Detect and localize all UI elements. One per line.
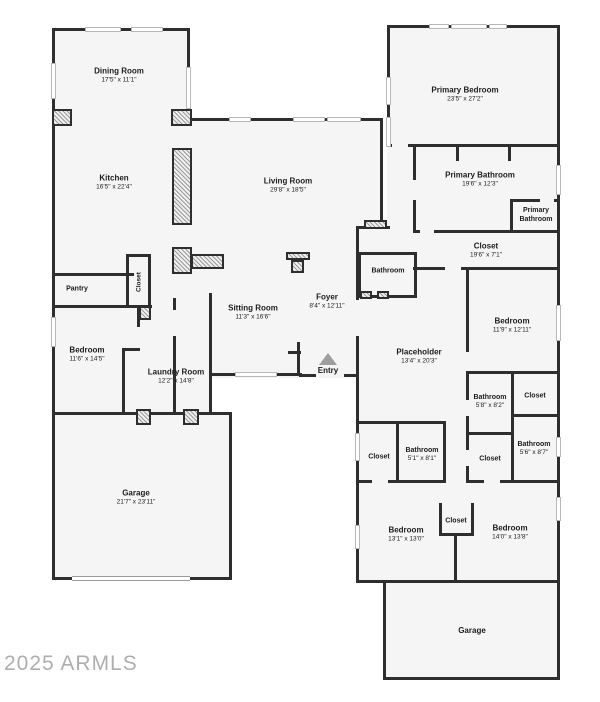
room-label-bedroom-b1: Bedroom 13'1" x 13'0": [388, 526, 424, 545]
room-name: Bathroom: [405, 446, 438, 455]
wall: [443, 424, 446, 481]
door-opening: [540, 199, 554, 202]
room-name: Foyer: [309, 293, 344, 303]
room-name: Placeholder: [396, 348, 441, 358]
window: [557, 498, 560, 520]
wall: [52, 28, 190, 31]
wall: [383, 583, 386, 680]
room-name: Pantry: [66, 284, 88, 293]
room-dims: 29'8" x 18'5": [264, 187, 312, 195]
wall: [466, 432, 514, 435]
room-name: Closet: [445, 516, 466, 525]
room-label-closet-b: Closet: [368, 452, 389, 461]
window: [557, 306, 560, 340]
floor-area: [208, 288, 302, 378]
door-opening: [484, 480, 500, 483]
window: [52, 318, 55, 346]
room-label-dining: Dining Room 17'5" x 11'1": [94, 67, 144, 86]
room-name: Bedroom: [69, 346, 104, 356]
wall: [126, 254, 151, 257]
wall: [383, 677, 560, 680]
window: [430, 25, 448, 28]
room-dims: 11'9" x 12'11": [493, 327, 531, 335]
room-label-closet-c: Closet: [479, 454, 500, 463]
window: [557, 438, 560, 456]
room-dims: 12'2" x 14'8": [148, 378, 204, 386]
wall-fixture: [139, 306, 151, 320]
room-label-bathroom-58: Bathroom 5'8" x 8'2": [473, 393, 506, 411]
room-label-bedroom-right: Bedroom 11'9" x 12'11": [493, 317, 531, 336]
pillar-fixture: [136, 409, 151, 425]
wall: [511, 432, 514, 483]
room-dims: 5'8" x 8'2": [473, 402, 506, 410]
window: [132, 28, 162, 31]
room-dims: 11'6" x 14'5": [69, 356, 104, 364]
wall: [187, 28, 190, 70]
room-label-closet-a: Closet: [524, 391, 545, 400]
room-dims: 11'3" x 16'6": [228, 314, 278, 322]
room-dims: 19'6" x 7'1": [470, 252, 502, 260]
room-name: Closet: [524, 391, 545, 400]
room-dims: 8'4" x 12'11": [309, 303, 344, 311]
room-label-pantry: Pantry: [66, 284, 88, 293]
floor-plan: Dining Room 17'5" x 11'1" Kitchen 16'5" …: [0, 0, 600, 702]
kitchen-counter-fixture: [172, 247, 192, 274]
room-label-bedroom-left: Bedroom 11'6" x 14'5": [69, 346, 104, 365]
room-name: Closet: [479, 454, 500, 463]
wall: [380, 118, 383, 224]
window: [52, 64, 55, 98]
window: [490, 25, 506, 28]
window: [236, 373, 276, 376]
fireplace-fixture: [286, 252, 310, 260]
window: [328, 118, 360, 121]
room-name: Laundry Room: [148, 368, 204, 378]
wall: [52, 273, 134, 276]
room-label-bedroom-b2: Bedroom 14'0" x 13'8": [492, 524, 528, 543]
kitchen-counter-fixture: [191, 254, 224, 269]
room-name: Bedroom: [493, 317, 531, 327]
room-label-bathroom-hall: Bathroom: [371, 266, 404, 275]
window: [387, 118, 390, 146]
wall: [466, 270, 469, 352]
room-name: Living Room: [264, 177, 312, 187]
window: [356, 526, 359, 548]
room-label-garage-left: Garage 21'7" x 23'11": [117, 489, 156, 508]
door-opening: [173, 310, 176, 336]
room-dims: 21'7" x 23'11": [117, 499, 156, 507]
door-opening: [356, 300, 359, 336]
room-name: Entry: [318, 366, 338, 376]
window: [230, 118, 250, 121]
room-name: Sitting Room: [228, 304, 278, 314]
column-fixture: [52, 109, 72, 126]
room-name: Primary Bedroom: [431, 86, 498, 96]
wall: [413, 230, 560, 233]
kitchen-island-fixture: [172, 148, 192, 225]
wall: [508, 147, 511, 161]
room-label-closet-mid: Closet: [445, 516, 466, 525]
door-opening: [446, 480, 466, 483]
wall: [439, 533, 474, 536]
wall: [148, 254, 151, 308]
wall: [396, 424, 399, 481]
room-label-entry: Entry: [318, 366, 338, 376]
room-label-placeholder: Placeholder 13'4" x 20'3": [396, 348, 441, 367]
wall: [511, 414, 560, 417]
room-label-foyer: Foyer 8'4" x 12'11": [309, 293, 344, 312]
wall: [439, 503, 442, 536]
room-name: Primary Bathroom: [445, 171, 515, 181]
window: [356, 434, 359, 460]
room-label-kitchen: Kitchen 16'5" x 22'4": [96, 174, 132, 193]
fireplace-fixture: [291, 260, 304, 273]
room-dims: 17'5" x 11'1": [94, 77, 144, 85]
room-name: Kitchen: [96, 174, 132, 184]
room-label-living: Living Room 29'8" x 18'5": [264, 177, 312, 196]
armls-watermark: 2025 ARMLS: [4, 652, 138, 676]
window: [294, 118, 324, 121]
room-dims: 16'5" x 22'4": [96, 184, 132, 192]
room-dims: 13'4" x 20'3": [396, 358, 441, 366]
room-label-primary-bathroom2: Primary Bathroom: [512, 206, 560, 224]
door-opening: [420, 230, 434, 233]
garage-door: [72, 576, 190, 581]
wall: [456, 147, 459, 161]
room-name: Bedroom: [492, 524, 528, 534]
door-opening: [466, 400, 469, 416]
room-label-bathroom-56: Bathroom 5'6" x 8'7": [517, 440, 550, 458]
wall: [454, 536, 457, 583]
wall: [511, 371, 514, 435]
room-name: Primary Bathroom: [512, 206, 560, 224]
wall: [358, 252, 417, 255]
wall: [471, 503, 474, 536]
room-name: Closet: [368, 452, 389, 461]
column-fixture: [171, 109, 192, 126]
wall: [126, 254, 129, 308]
room-dims: 5'1" x 8'1": [405, 455, 438, 463]
room-label-bathroom-51: Bathroom 5'1" x 8'1": [405, 446, 438, 464]
wall-fixture: [377, 291, 389, 299]
room-label-garage-right: Garage: [458, 626, 486, 636]
wall-fixture: [364, 220, 387, 229]
room-name: Garage: [117, 489, 156, 499]
wall: [209, 293, 212, 414]
wall-fixture: [360, 291, 372, 299]
wall: [414, 252, 417, 298]
room-label-primary-bathroom: Primary Bathroom 19'6" x 12'3": [445, 171, 515, 190]
door-opening: [392, 144, 408, 147]
door-opening: [372, 480, 388, 483]
room-label-laundry: Laundry Room 12'2" x 14'8": [148, 368, 204, 387]
window: [86, 28, 120, 31]
wall: [229, 412, 232, 580]
window: [557, 166, 560, 194]
wall: [557, 583, 560, 680]
room-name: Bathroom: [473, 393, 506, 402]
room-dims: 5'6" x 8'7": [517, 449, 550, 457]
room-dims: 23'5" x 27'2": [431, 96, 498, 104]
room-name: Garage: [458, 626, 486, 636]
door-opening: [445, 267, 461, 270]
wall: [413, 267, 560, 270]
wall: [297, 342, 300, 375]
room-label-closet-kitchen: Closet: [136, 272, 143, 292]
door-opening: [466, 450, 469, 466]
wall: [356, 580, 560, 583]
room-dims: 14'0" x 13'8": [492, 534, 528, 542]
door-opening: [413, 180, 416, 200]
room-label-sitting: Sitting Room 11'3" x 16'6": [228, 304, 278, 323]
window: [387, 78, 390, 104]
room-dims: 19'6" x 12'3": [445, 181, 515, 189]
room-label-closet-primary: Closet 19'6" x 7'1": [470, 242, 502, 261]
room-name: Closet: [470, 242, 502, 252]
wall: [466, 371, 469, 483]
wall: [358, 421, 446, 424]
window: [187, 68, 190, 108]
room-name: Bathroom: [517, 440, 550, 449]
entry-direction-marker: [319, 353, 337, 365]
room-dims: 13'1" x 13'0": [388, 536, 424, 544]
room-name: Dining Room: [94, 67, 144, 77]
wall: [122, 350, 125, 414]
window: [452, 25, 486, 28]
room-name: Bedroom: [388, 526, 424, 536]
pillar-fixture: [183, 409, 199, 425]
room-label-primary-bedroom: Primary Bedroom 23'5" x 27'2": [431, 86, 498, 105]
room-name: Bathroom: [371, 266, 404, 275]
